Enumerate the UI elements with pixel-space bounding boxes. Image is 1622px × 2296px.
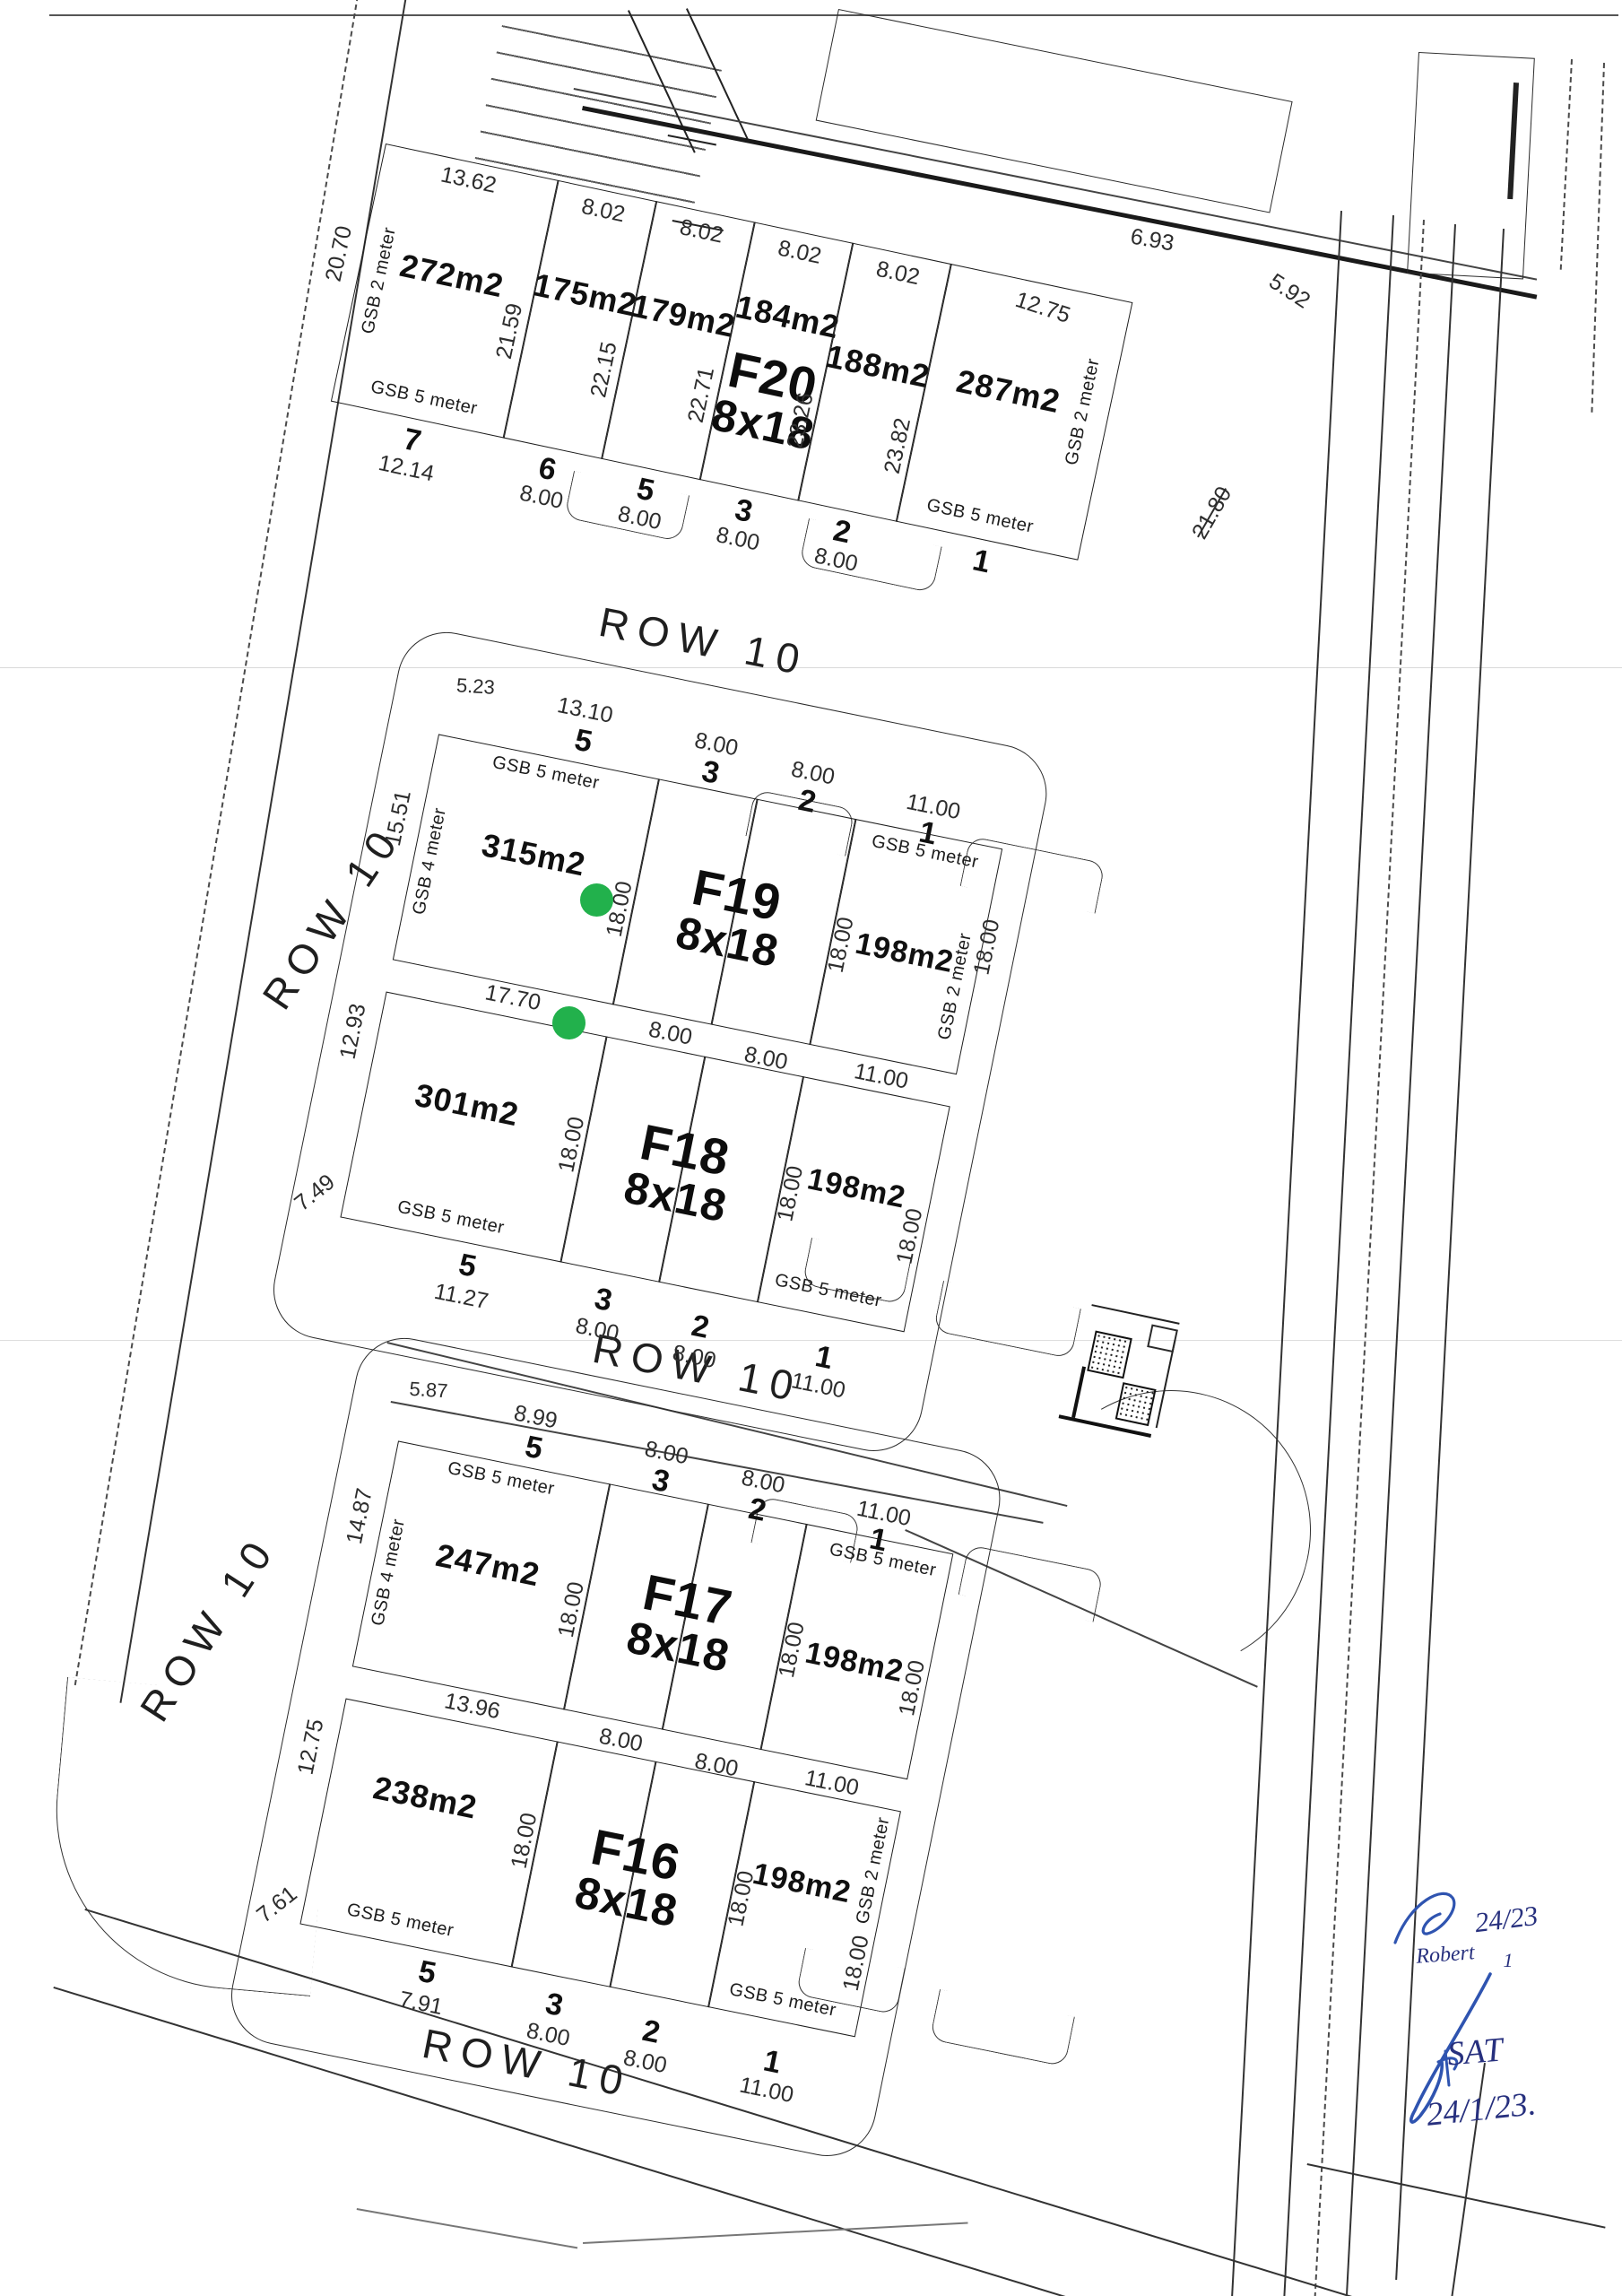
kerb-corner-dim: 5.23 [455, 674, 495, 700]
scanned-survey-plan: 13.62 GSB 2 meter 272m2 21.59 GSB 5 mete… [0, 0, 1622, 2296]
footer-num: 1 [812, 1339, 836, 1377]
gsb-label: GSB 2 meter [1062, 357, 1105, 467]
signature-date-1: 24/23 [1473, 1900, 1540, 1939]
plot-dim-top: 8.02 [874, 257, 923, 291]
topright-dashed-line-1 [1560, 59, 1573, 270]
header-dim: 8.99 [512, 1400, 559, 1434]
gsb-label: GSB 5 meter [773, 1270, 883, 1312]
marker-dot-2 [552, 1006, 585, 1039]
marker-dot-1 [580, 883, 613, 917]
header-num: 5 [522, 1430, 545, 1467]
plot-area: 315m2 [479, 826, 589, 884]
scan-top-edge-line [49, 14, 1618, 16]
footer-num: 2 [689, 1309, 712, 1346]
block-f20: 13.62 GSB 2 meter 272m2 21.59 GSB 5 mete… [317, 143, 1131, 622]
block-label-f16: F16 8x18 [571, 1820, 691, 1935]
right-road-line-2 [1283, 215, 1393, 2296]
kerb-tab-10 [930, 1989, 1075, 2067]
plot-dim-top: 13.62 [438, 161, 499, 198]
plot-area: 175m2 [530, 265, 640, 324]
gsb-label: GSB 5 meter [870, 831, 980, 874]
plot-dim-top: 8.02 [579, 194, 628, 228]
plot-width: 8.00 [714, 522, 762, 556]
plot-number: 2 [830, 513, 854, 551]
right-road-line-1 [1231, 211, 1342, 2296]
block-label-f17: F17 8x18 [623, 1564, 743, 1680]
annotation-dim-592: 5.92 [1264, 269, 1315, 315]
plot-number: 5 [634, 472, 658, 509]
block-f19-f18: 5.23 13.10 5 8.00 3 8.00 2 11.00 1 GSB 5… [325, 664, 1015, 1402]
footer-num: 2 [639, 2013, 663, 2051]
plot-width: 8.00 [517, 481, 566, 515]
kerb-corner-dim: 5.87 [409, 1378, 448, 1404]
scan-artifact-line-1 [0, 667, 1622, 668]
signature-name-1: Robert [1415, 1941, 1475, 1969]
gsb-label: GSB 5 meter [369, 377, 479, 420]
building-small-square [1147, 1324, 1178, 1352]
annotation-dim-2180-struck: 21.80 [1187, 483, 1237, 544]
plot-area: 238m2 [370, 1769, 481, 1827]
plot-area: 184m2 [733, 288, 843, 346]
plot-area: 198m2 [802, 1636, 906, 1690]
block-label-f18: F18 8x18 [620, 1115, 741, 1231]
footer-dim: 7.91 [397, 1987, 445, 2021]
plot-number: 6 [535, 450, 559, 488]
plot-dim-top: 8.02 [776, 235, 824, 269]
building-top-line [1091, 1304, 1179, 1324]
plot-area: 188m2 [823, 337, 933, 396]
annotation-dim-693: 6.93 [1129, 223, 1176, 257]
plot-area: 247m2 [433, 1536, 543, 1595]
block-label-f19: F19 8x18 [672, 859, 793, 975]
footer-dim: 11.27 [432, 1279, 490, 1316]
plot-area: 179m2 [629, 287, 739, 345]
signature-name-2: SAT [1445, 2030, 1505, 2074]
plot-number: 7 [400, 422, 424, 459]
building-thick-left [1071, 1366, 1086, 1418]
plot-area: 198m2 [750, 1857, 854, 1910]
plot-area: 198m2 [853, 926, 957, 980]
plot-number: 1 [969, 543, 993, 580]
building-hatched-square-1 [1087, 1331, 1132, 1379]
gsb-label: GSB 5 meter [924, 495, 1035, 538]
plot-area: 287m2 [953, 362, 1063, 421]
plot-width: 8.00 [615, 501, 664, 535]
header-num: 5 [571, 723, 594, 761]
header-num: 3 [698, 754, 722, 792]
footer-num: 3 [592, 1282, 615, 1319]
road-corner-arc [1000, 1359, 1342, 1701]
bottom-faint-line-2 [583, 2222, 967, 2243]
plot-dim-top: 12.75 [1012, 287, 1073, 329]
plot-area: 301m2 [412, 1076, 522, 1135]
gsb-label: GSB 5 meter [727, 1979, 837, 2022]
plot-area: 198m2 [804, 1161, 908, 1215]
bottom-faint-line-1 [357, 2208, 577, 2248]
building-hatched-square-2 [1115, 1382, 1157, 1426]
plot-width: 12.14 [376, 450, 436, 487]
footer-num: 5 [415, 1954, 438, 1992]
footer-num: 1 [760, 2043, 784, 2081]
footer-num: 3 [542, 1987, 566, 2024]
topright-dashed-line-2 [1591, 63, 1605, 413]
gsb-label: GSB 2 meter [358, 225, 401, 335]
plot-area: 272m2 [396, 247, 507, 305]
plot-dim-top: 8.02 [677, 214, 725, 248]
plot-width: 8.00 [812, 543, 861, 577]
gsb-label: GSB 5 meter [828, 1539, 938, 1581]
left-road-edge-dashed [74, 0, 359, 1685]
gsb-label: GSB 5 meter [345, 1900, 455, 1942]
kerb-tab-6 [933, 1281, 1081, 1359]
footer-num: 5 [455, 1248, 479, 1285]
plot-dim-left-outside: 20.70 [321, 223, 358, 283]
gsb-label: GSB 5 meter [395, 1197, 506, 1239]
plot-number: 3 [732, 492, 756, 530]
gsb-label: GSB 5 meter [446, 1458, 556, 1500]
